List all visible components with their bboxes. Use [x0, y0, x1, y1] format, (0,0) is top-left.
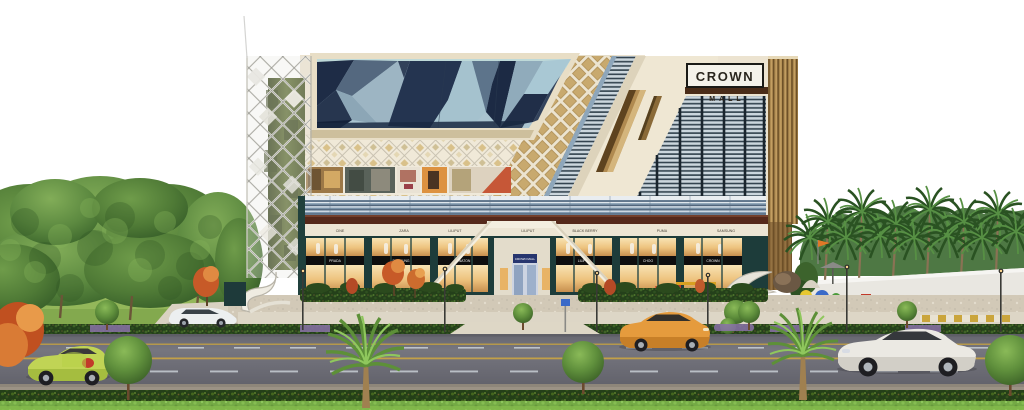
- svg-text:LILIPUT: LILIPUT: [521, 229, 535, 233]
- svg-text:CROWN: CROWN: [696, 69, 755, 84]
- svg-text:CINE: CINE: [336, 229, 345, 233]
- svg-text:CROWN MALL: CROWN MALL: [515, 257, 536, 261]
- svg-text:CHOO: CHOO: [643, 259, 654, 263]
- svg-text:LILIPUT: LILIPUT: [448, 229, 462, 233]
- svg-text:MALL: MALL: [709, 96, 744, 103]
- svg-text:PUMA: PUMA: [657, 229, 668, 233]
- svg-text:PRADA: PRADA: [329, 259, 341, 263]
- svg-text:CROWN: CROWN: [706, 259, 720, 263]
- svg-text:SAMSUNG: SAMSUNG: [717, 229, 735, 233]
- svg-text:BLACK BERRY: BLACK BERRY: [572, 229, 598, 233]
- svg-text:ZARA: ZARA: [399, 229, 409, 233]
